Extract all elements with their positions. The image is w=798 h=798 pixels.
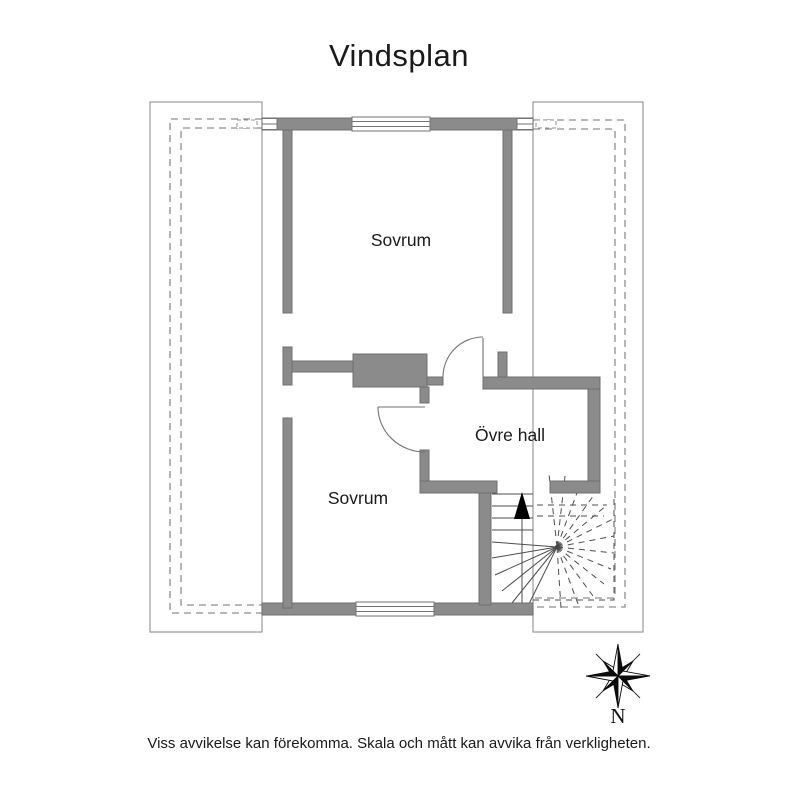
- room-label-upper-hall: Övre hall: [475, 425, 545, 445]
- room-label-bedroom-top: Sovrum: [371, 230, 431, 250]
- compass-north-label: N: [610, 704, 625, 728]
- compass-rose-icon: N: [586, 644, 650, 728]
- door-lower-bedroom: [378, 407, 425, 452]
- disclaimer-text: Viss avvikelse kan förekomma. Skala och …: [0, 735, 798, 752]
- roof-area-left: [150, 102, 262, 632]
- room-label-bedroom-bottom: Sovrum: [328, 488, 388, 508]
- floor-plan: Sovrum Sovrum Övre hall N: [0, 0, 798, 798]
- door-upper-bedroom: [443, 337, 483, 377]
